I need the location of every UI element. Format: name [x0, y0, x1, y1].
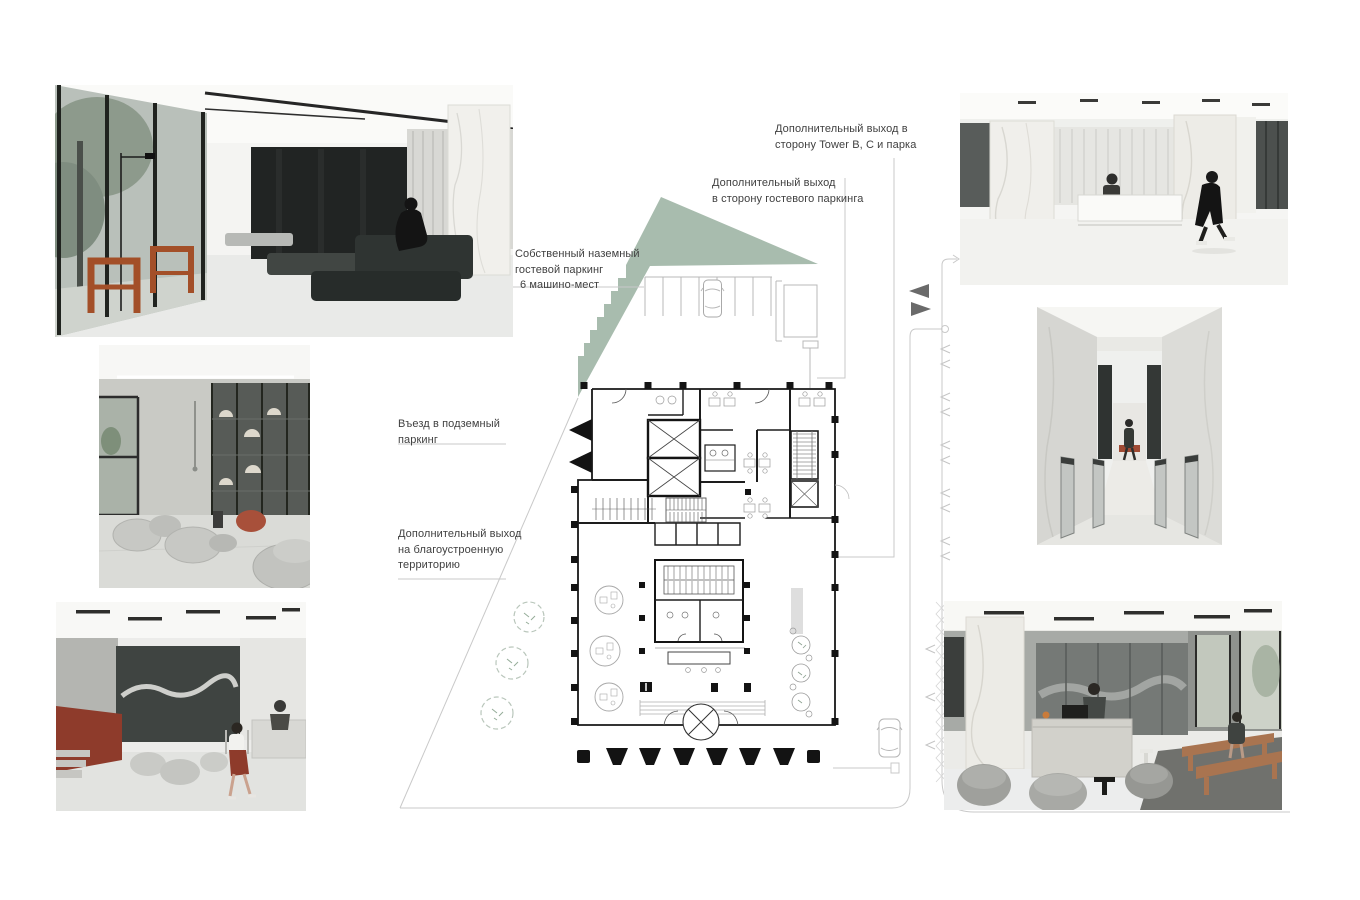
label-line: паркинг — [398, 433, 500, 449]
label-line: Дополнительный выход — [712, 176, 863, 192]
render-lobby-lounge-art — [55, 85, 513, 337]
label-line: территорию — [398, 558, 522, 574]
render-lobby-lounge-wide — [55, 85, 513, 337]
green-wedge — [578, 197, 818, 397]
label-line: Дополнительный выход в — [775, 122, 916, 138]
elevator-core — [648, 420, 700, 496]
label-underground-entry: Въезд в подземный паркинг — [398, 417, 500, 448]
render-entrance-hall — [56, 602, 306, 811]
road-car-icon — [877, 719, 902, 757]
render-cafe-art — [944, 601, 1282, 810]
render-marble-hall — [960, 93, 1288, 285]
label-line: сторону Tower B, C и парка — [775, 138, 916, 154]
label-line: гостевой паркинг — [515, 263, 640, 279]
traffic-direction-arrows — [909, 284, 931, 316]
render-cafe-lounge — [944, 601, 1282, 810]
car-icon — [701, 280, 724, 317]
underground-entry-arrows — [569, 419, 592, 473]
parking-entry-ramp — [776, 281, 818, 388]
render-lounge-glass-partition — [99, 345, 310, 588]
render-elevator-lobby — [1037, 307, 1222, 545]
render-lounge-art — [99, 345, 310, 588]
label-landscaped-exit: Дополнительный выход на благоустроенную … — [398, 527, 522, 574]
reception-counter-art — [1078, 195, 1182, 221]
label-line: на благоустроенную — [398, 543, 522, 559]
label-line: в сторону гостевого паркинга — [712, 192, 863, 208]
south-colonnade — [577, 748, 820, 765]
marble-pillar — [966, 617, 1024, 769]
guest-parking-stalls — [645, 277, 772, 317]
label-towers-exit: Дополнительный выход в сторону Tower B, … — [775, 122, 916, 153]
label-line: 6 машино-мест — [515, 278, 640, 294]
label-guest-parking-exit: Дополнительный выход в сторону гостевого… — [712, 176, 863, 207]
label-line: Дополнительный выход — [398, 527, 522, 543]
render-elevator-lobby-art — [1037, 307, 1222, 545]
presentation-board: Дополнительный выход в сторону Tower B, … — [0, 0, 1360, 900]
label-line: Въезд в подземный — [398, 417, 500, 433]
tree-icons — [481, 602, 544, 729]
building-floor-plan — [571, 382, 849, 765]
label-line: Собственный наземный — [515, 247, 640, 263]
red-armchair — [236, 510, 266, 532]
render-entrance-art — [56, 602, 306, 811]
render-marble-hall-art — [960, 93, 1288, 285]
label-own-parking: Собственный наземный гостевой паркинг 6 … — [515, 247, 640, 294]
